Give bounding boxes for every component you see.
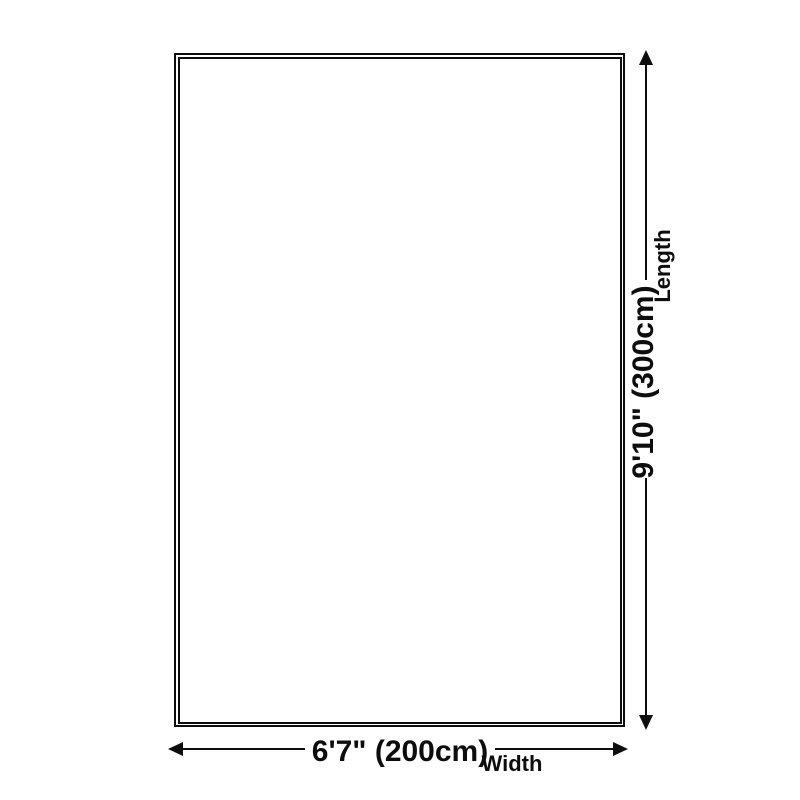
arrow-down-icon bbox=[639, 715, 653, 730]
arrow-right-icon bbox=[613, 742, 628, 756]
width-arrow-line-right bbox=[495, 748, 615, 751]
rug-size-diagram: Length 9'10" (300cm) 6'7" (200cm) Width bbox=[0, 0, 800, 800]
width-axis-label: Width bbox=[482, 753, 543, 775]
width-arrow-line-left bbox=[181, 748, 305, 751]
length-arrow-line-lower bbox=[645, 478, 648, 717]
rug-outline bbox=[174, 53, 625, 727]
length-arrow-line-upper bbox=[645, 63, 648, 280]
width-dimension-label: 6'7" (200cm) bbox=[312, 737, 488, 767]
length-dimension-label: 9'10" (300cm) bbox=[629, 285, 659, 478]
